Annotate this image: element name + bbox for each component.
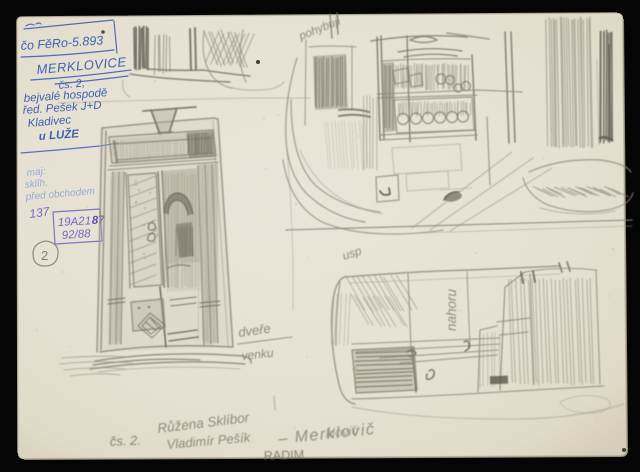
svg-text:137: 137 <box>28 204 51 221</box>
svg-text:RADIM: RADIM <box>264 448 305 463</box>
svg-text:19A21: 19A21 <box>58 215 92 229</box>
svg-text:92/88: 92/88 <box>61 228 91 242</box>
svg-text:nahoru: nahoru <box>444 288 459 331</box>
svg-text:2: 2 <box>41 248 48 263</box>
svg-text:čs. 2.: čs. 2. <box>109 432 141 449</box>
